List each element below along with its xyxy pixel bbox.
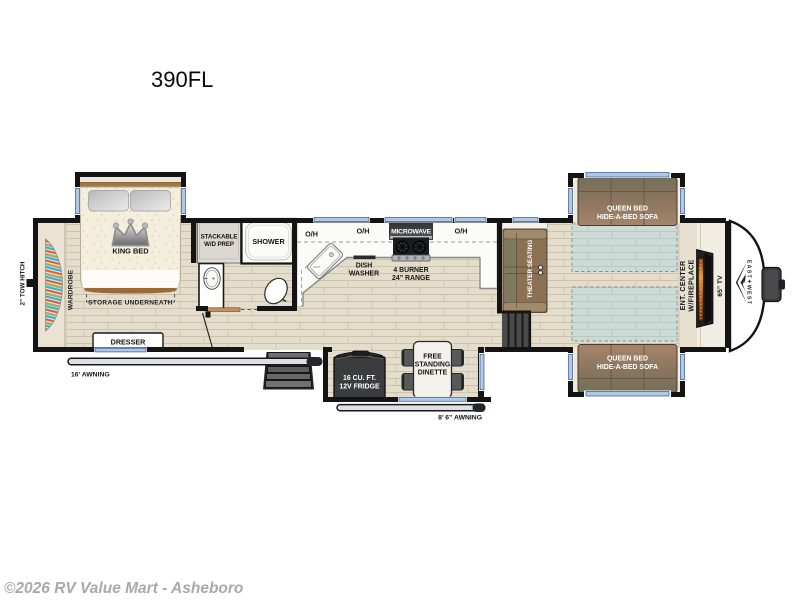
svg-text:W/FIREPLACE: W/FIREPLACE	[688, 259, 696, 311]
svg-text:©2026 RV Value Mart - Asheboro: ©2026 RV Value Mart - Asheboro	[4, 580, 243, 597]
svg-text:KING BED: KING BED	[112, 247, 149, 256]
svg-text:DRESSER: DRESSER	[111, 338, 147, 347]
svg-text:ENT. CENTER: ENT. CENTER	[679, 261, 687, 311]
svg-text:12V FRIDGE: 12V FRIDGE	[339, 384, 380, 391]
svg-text:O/H: O/H	[357, 227, 370, 236]
svg-text:2” TOW HITCH: 2” TOW HITCH	[20, 261, 27, 305]
svg-text:EAST✦WEST: EAST✦WEST	[746, 260, 752, 305]
svg-text:FREE: FREE	[423, 354, 442, 361]
svg-text:MICROWAVE: MICROWAVE	[391, 229, 431, 236]
svg-text:W/D PREP: W/D PREP	[204, 241, 234, 248]
svg-text:16 CU. FT.: 16 CU. FT.	[343, 375, 376, 382]
svg-text:65” TV: 65” TV	[717, 275, 724, 297]
svg-text:DINETTE: DINETTE	[418, 370, 448, 377]
svg-text:THEATER SEATING: THEATER SEATING	[527, 240, 534, 299]
svg-text:STANDING: STANDING	[415, 362, 450, 369]
svg-text:HIDE-A-BED SOFA: HIDE-A-BED SOFA	[597, 214, 658, 221]
svg-text:O/H: O/H	[455, 227, 468, 236]
svg-text:WARDROBE: WARDROBE	[67, 269, 74, 310]
svg-text:16’ AWNING: 16’ AWNING	[71, 372, 110, 379]
svg-text:4 BURNER: 4 BURNER	[393, 267, 428, 274]
svg-text:8’ 6” AWNING: 8’ 6” AWNING	[438, 415, 482, 422]
svg-text:HIDE-A-BED SOFA: HIDE-A-BED SOFA	[597, 364, 658, 371]
svg-text:SHOWER: SHOWER	[252, 237, 285, 246]
svg-text:STACKABLE: STACKABLE	[201, 234, 238, 241]
svg-text:DISH: DISH	[356, 263, 372, 270]
svg-text:STORAGE UNDERNEATH: STORAGE UNDERNEATH	[88, 300, 172, 307]
svg-text:QUEEN BED: QUEEN BED	[607, 206, 648, 213]
svg-text:O/H: O/H	[305, 230, 318, 239]
svg-text:WASHER: WASHER	[349, 271, 379, 278]
svg-text:390FL: 390FL	[151, 67, 213, 92]
svg-text:QUEEN BED: QUEEN BED	[607, 356, 648, 363]
svg-text:24” RANGE: 24” RANGE	[392, 275, 430, 282]
